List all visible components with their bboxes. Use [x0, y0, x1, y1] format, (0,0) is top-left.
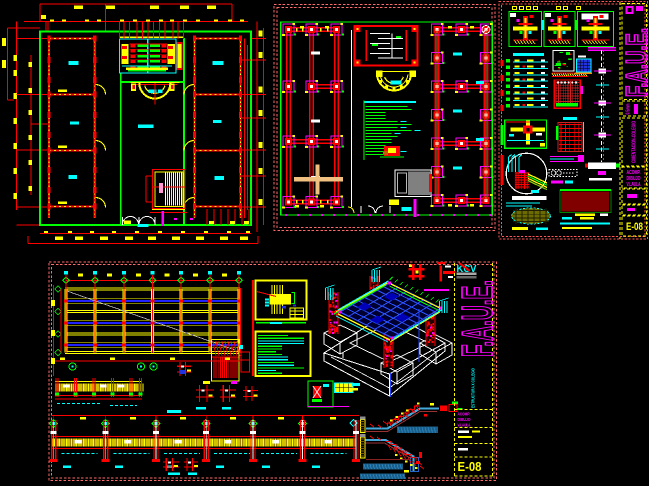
- svg-text:E-08: E-08: [626, 221, 643, 233]
- svg-text:DIBUJO: DIBUJO: [458, 417, 471, 422]
- svg-text:CIMENTACION-COLEGIO: CIMENTACION-COLEGIO: [632, 121, 638, 163]
- svg-text:F.A.U.E.: F.A.U.E.: [621, 28, 649, 97]
- svg-text:0.5mm: 0.5mm: [626, 103, 632, 114]
- svg-text:V.LAULA: V.LAULA: [627, 182, 641, 188]
- svg-text:V.LAULA: V.LAULA: [458, 423, 471, 428]
- svg-text:ACOMP:: ACOMP:: [458, 412, 471, 417]
- svg-text:ESTRUCTURA X COLEGIO: ESTRUCTURA X COLEGIO: [471, 368, 477, 408]
- svg-text:F.A.U.E.: F.A.U.E.: [453, 280, 502, 357]
- svg-text:E-08: E-08: [458, 459, 482, 474]
